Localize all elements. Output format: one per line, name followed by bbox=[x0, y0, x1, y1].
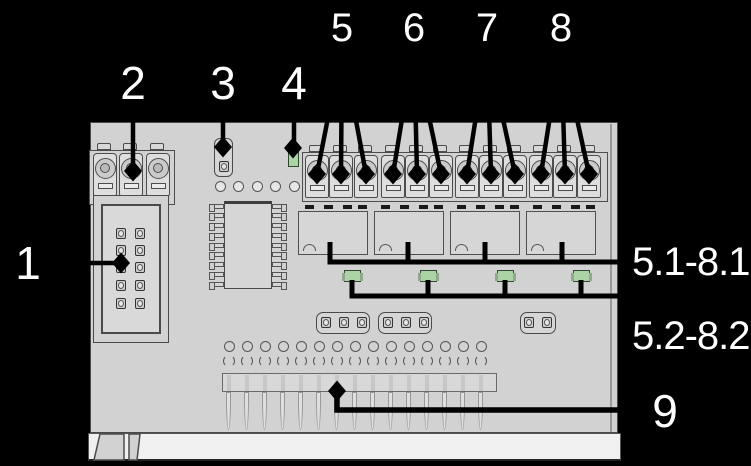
header-socket bbox=[403, 355, 415, 367]
header-socket bbox=[331, 355, 343, 367]
terminal-tab bbox=[557, 145, 571, 152]
header-hole bbox=[260, 341, 271, 352]
terminal-wire-slot bbox=[460, 185, 475, 191]
ic-pin bbox=[212, 252, 224, 257]
header-socket bbox=[259, 355, 271, 367]
via-hole bbox=[289, 181, 300, 192]
relay-pin bbox=[476, 205, 485, 209]
header-hole bbox=[332, 341, 343, 352]
terminal-tab bbox=[507, 145, 521, 152]
connector-pin bbox=[116, 262, 126, 273]
header-hole bbox=[296, 341, 307, 352]
terminal-wire-slot bbox=[151, 183, 166, 189]
relay-pin bbox=[305, 205, 314, 209]
relay bbox=[450, 211, 520, 255]
callout-label-1: 1 bbox=[15, 240, 41, 286]
terminal-wire-slot bbox=[534, 185, 549, 191]
relay-pin bbox=[419, 205, 428, 209]
connector-pin bbox=[135, 262, 145, 273]
terminal-screw bbox=[148, 158, 169, 179]
terminal-tab bbox=[333, 145, 347, 152]
header-pin-shaft bbox=[443, 375, 447, 391]
connector-pin bbox=[116, 228, 126, 239]
terminal-wire-slot bbox=[386, 185, 401, 191]
jumper-pin bbox=[321, 317, 331, 328]
relay-pin bbox=[510, 205, 519, 209]
header-socket bbox=[313, 355, 325, 367]
ic-pin bbox=[272, 213, 284, 218]
callout-label-8: 8 bbox=[550, 8, 572, 48]
terminal-tab bbox=[483, 145, 497, 152]
ic-pin bbox=[272, 272, 284, 277]
terminal-tab bbox=[385, 145, 399, 152]
screw-terminal bbox=[93, 153, 117, 196]
ic-pin bbox=[212, 262, 224, 267]
relay-pin bbox=[571, 205, 580, 209]
terminal-screw bbox=[531, 160, 552, 181]
connector-pin bbox=[135, 298, 145, 309]
terminal-screw bbox=[505, 160, 526, 181]
header-pin-shaft bbox=[317, 375, 321, 391]
ic-pin bbox=[212, 272, 224, 277]
header-pin-shaft bbox=[227, 375, 231, 391]
relay-status-led bbox=[573, 270, 590, 282]
terminal-wire-slot bbox=[434, 185, 449, 191]
header-hole bbox=[278, 341, 289, 352]
relay-pin bbox=[586, 205, 595, 209]
header-hole bbox=[350, 341, 361, 352]
header-hole bbox=[314, 341, 325, 352]
relay-pin bbox=[495, 205, 504, 209]
header-socket bbox=[475, 355, 487, 367]
terminal-tab bbox=[459, 145, 473, 152]
terminal-tab bbox=[97, 143, 111, 150]
ic-pin bbox=[212, 282, 224, 287]
terminal-tab bbox=[150, 143, 164, 150]
fuse-pin bbox=[219, 161, 229, 172]
terminal-screw bbox=[331, 160, 352, 181]
header-socket bbox=[367, 355, 379, 367]
terminal-screw bbox=[356, 160, 377, 181]
ic-pin bbox=[272, 252, 284, 257]
ic-pin bbox=[272, 233, 284, 238]
header-hole bbox=[404, 341, 415, 352]
terminal-screw bbox=[555, 160, 576, 181]
terminal-wire-slot bbox=[484, 185, 499, 191]
relay-pin bbox=[533, 205, 542, 209]
relay-pin bbox=[457, 205, 466, 209]
relay-status-led bbox=[497, 270, 514, 282]
relay bbox=[374, 211, 444, 255]
callout-label-2: 2 bbox=[120, 60, 146, 106]
board-right-edge-line bbox=[610, 124, 612, 432]
via-hole bbox=[215, 181, 226, 192]
ic-pin bbox=[212, 243, 224, 248]
terminal-tab bbox=[309, 145, 323, 152]
via-hole bbox=[270, 181, 281, 192]
terminal-tab bbox=[358, 145, 372, 152]
relay bbox=[298, 211, 368, 255]
jumper-pin bbox=[524, 317, 534, 328]
terminal-screw bbox=[307, 160, 328, 181]
header-pin-shaft bbox=[281, 375, 285, 391]
terminal-tab bbox=[533, 145, 547, 152]
header-socket bbox=[385, 355, 397, 367]
header-socket bbox=[439, 355, 451, 367]
terminal-screw bbox=[457, 160, 478, 181]
relay-pin bbox=[552, 205, 561, 209]
screw-terminal bbox=[503, 155, 527, 198]
power-led bbox=[288, 150, 299, 167]
ic-pin bbox=[212, 223, 224, 228]
header-hole bbox=[476, 341, 487, 352]
callout-label-5: 5 bbox=[331, 8, 353, 48]
jumper-pin bbox=[383, 317, 393, 328]
header-pin-shaft bbox=[461, 375, 465, 391]
connector-pin bbox=[135, 280, 145, 291]
screw-terminal bbox=[354, 155, 378, 198]
header-pin-shaft bbox=[353, 375, 357, 391]
header-hole bbox=[224, 341, 235, 352]
header-pin-shaft bbox=[389, 375, 393, 391]
connector-pin bbox=[116, 280, 126, 291]
screw-terminal bbox=[529, 155, 553, 198]
diagram-canvas: 5 6 7 8 2 3 4 1 5.1-8.1 5.2-8.2 9 bbox=[0, 0, 751, 466]
terminal-tab bbox=[433, 145, 447, 152]
relay-pin bbox=[343, 205, 352, 209]
relay-status-led bbox=[344, 270, 361, 282]
terminal-wire-slot bbox=[582, 185, 597, 191]
header-hole bbox=[386, 341, 397, 352]
header-pin-shaft bbox=[407, 375, 411, 391]
relay bbox=[526, 211, 596, 255]
screw-terminal bbox=[305, 155, 329, 198]
header-socket bbox=[241, 355, 253, 367]
header-socket bbox=[457, 355, 469, 367]
jumper-pin bbox=[419, 317, 429, 328]
ic-pin bbox=[272, 243, 284, 248]
screw-terminal bbox=[381, 155, 405, 198]
jumper-pin bbox=[357, 317, 367, 328]
via-hole bbox=[233, 181, 244, 192]
header-pin-shaft bbox=[299, 375, 303, 391]
ribbon-connector-inner bbox=[101, 204, 161, 334]
header-hole bbox=[440, 341, 451, 352]
ic-pin bbox=[272, 204, 284, 209]
ic-pin bbox=[212, 213, 224, 218]
callout-label-4: 4 bbox=[281, 60, 307, 106]
connector-pin bbox=[116, 245, 126, 256]
connector-pin bbox=[116, 298, 126, 309]
board-bottom-edge bbox=[88, 433, 621, 461]
callout-label-5.1-8.1: 5.1-8.1 bbox=[632, 242, 750, 282]
header-hole bbox=[458, 341, 469, 352]
header-pin-shaft bbox=[371, 375, 375, 391]
header-pin-shaft bbox=[479, 375, 483, 391]
connector-pin bbox=[135, 245, 145, 256]
screw-terminal bbox=[479, 155, 503, 198]
header-socket bbox=[295, 355, 307, 367]
relay-pin bbox=[324, 205, 333, 209]
relay-pin bbox=[381, 205, 390, 209]
screw-terminal bbox=[146, 153, 170, 196]
callout-label-9: 9 bbox=[652, 388, 678, 434]
screw-terminal bbox=[329, 155, 353, 198]
header-socket bbox=[421, 355, 433, 367]
ic-pin bbox=[272, 223, 284, 228]
ic-pin bbox=[212, 233, 224, 238]
terminal-wire-slot bbox=[359, 185, 374, 191]
screw-terminal bbox=[455, 155, 479, 198]
header-hole bbox=[422, 341, 433, 352]
connector-pin bbox=[135, 228, 145, 239]
via-hole bbox=[252, 181, 263, 192]
jumper-pin bbox=[542, 317, 552, 328]
screw-terminal bbox=[429, 155, 453, 198]
relay-pin bbox=[434, 205, 443, 209]
jumper-pin bbox=[401, 317, 411, 328]
header-hole bbox=[368, 341, 379, 352]
terminal-tab bbox=[123, 143, 137, 150]
relay-status-led bbox=[420, 270, 437, 282]
screw-terminal bbox=[577, 155, 601, 198]
terminal-wire-slot bbox=[98, 183, 113, 189]
terminal-wire-slot bbox=[410, 185, 425, 191]
header-pin-shaft bbox=[245, 375, 249, 391]
callout-label-3: 3 bbox=[210, 60, 236, 106]
terminal-screw bbox=[579, 160, 600, 181]
header-pin-shaft bbox=[425, 375, 429, 391]
terminal-wire-slot bbox=[124, 183, 139, 189]
screw-terminal bbox=[405, 155, 429, 198]
header-pin-shaft bbox=[335, 375, 339, 391]
terminal-screw bbox=[481, 160, 502, 181]
terminal-wire-slot bbox=[334, 185, 349, 191]
screw-terminal bbox=[553, 155, 577, 198]
terminal-tab bbox=[581, 145, 595, 152]
jumper-pin bbox=[339, 317, 349, 328]
terminal-tab bbox=[409, 145, 423, 152]
relay-pin bbox=[400, 205, 409, 209]
terminal-wire-slot bbox=[558, 185, 573, 191]
terminal-screw bbox=[431, 160, 452, 181]
header-pin-shaft bbox=[263, 375, 267, 391]
header-hole bbox=[242, 341, 253, 352]
terminal-wire-slot bbox=[310, 185, 325, 191]
callout-label-6: 6 bbox=[403, 8, 425, 48]
terminal-screw bbox=[121, 158, 142, 179]
terminal-wire-slot bbox=[508, 185, 523, 191]
terminal-screw bbox=[383, 160, 404, 181]
header-socket bbox=[349, 355, 361, 367]
header-socket bbox=[277, 355, 289, 367]
ic-pin bbox=[272, 262, 284, 267]
ic-pin bbox=[272, 282, 284, 287]
callout-label-5.2-8.2: 5.2-8.2 bbox=[632, 316, 750, 356]
terminal-screw bbox=[407, 160, 428, 181]
header-socket bbox=[223, 355, 235, 367]
ic-chip bbox=[224, 201, 272, 289]
callout-label-7: 7 bbox=[476, 8, 498, 48]
ic-pin bbox=[212, 204, 224, 209]
screw-terminal bbox=[119, 153, 143, 196]
relay-pin bbox=[358, 205, 367, 209]
terminal-screw bbox=[95, 158, 116, 179]
